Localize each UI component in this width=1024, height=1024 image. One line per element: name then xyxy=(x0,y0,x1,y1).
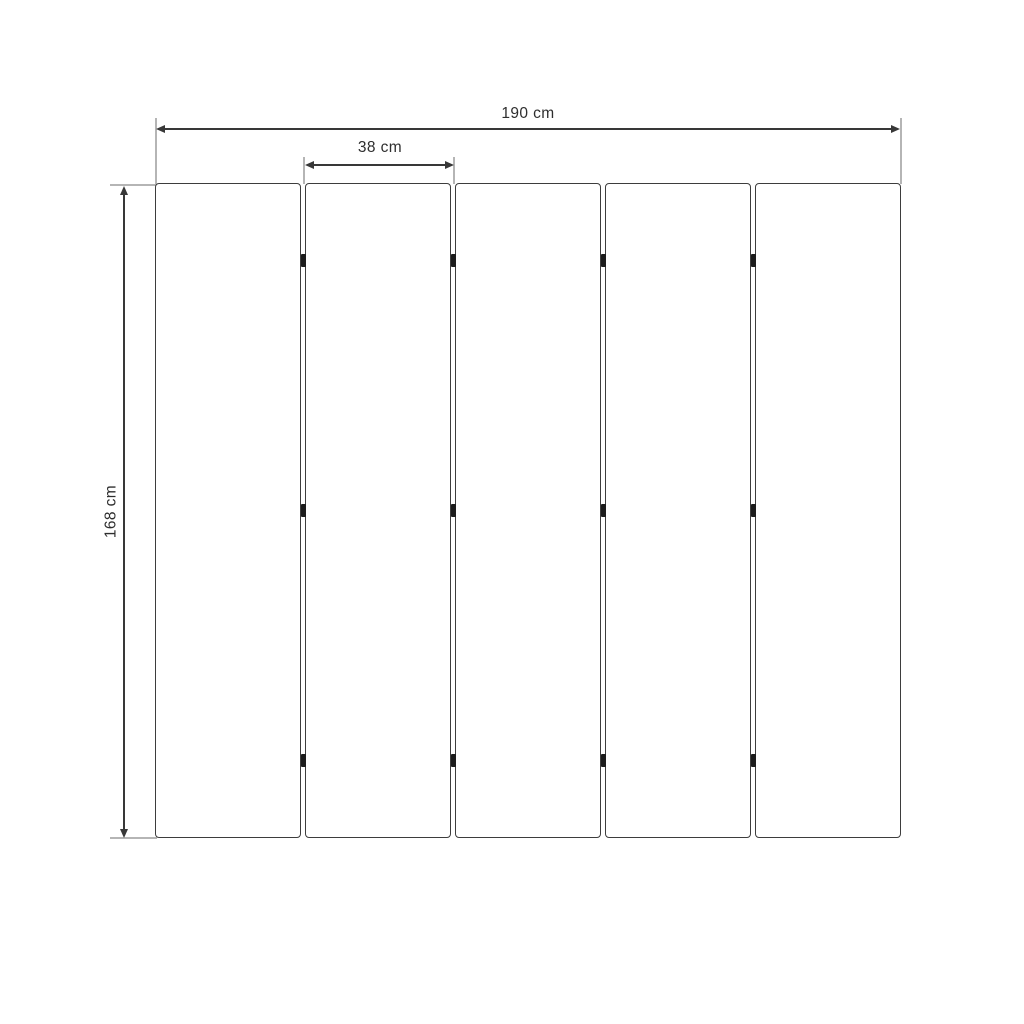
hinge-mark xyxy=(751,754,756,767)
arrow-left-icon xyxy=(156,125,165,133)
arrow-up-icon xyxy=(120,186,128,195)
height-label: 168 cm xyxy=(102,461,121,561)
arrow-right-icon xyxy=(445,161,454,169)
hinge-mark xyxy=(451,504,456,517)
hinge-mark xyxy=(601,254,606,267)
extension-line-height-bottom xyxy=(110,837,157,839)
total-width-label: 190 cm xyxy=(428,104,628,123)
panel-1 xyxy=(155,183,301,838)
panel-5 xyxy=(755,183,901,838)
hinge-mark xyxy=(301,254,306,267)
panel-3 xyxy=(455,183,601,838)
hinge-mark xyxy=(301,504,306,517)
panel-4 xyxy=(605,183,751,838)
panel-2 xyxy=(305,183,451,838)
hinge-mark xyxy=(301,754,306,767)
arrow-down-icon xyxy=(120,829,128,838)
dimension-line-panel-width xyxy=(308,164,450,166)
diagram-canvas: 190 cm 38 cm 168 cm xyxy=(0,0,1024,1024)
extension-line-height-top xyxy=(110,184,157,186)
hinge-mark xyxy=(601,754,606,767)
dimension-line-total-width xyxy=(160,128,896,130)
hinge-mark xyxy=(451,254,456,267)
arrow-right-icon xyxy=(891,125,900,133)
arrow-left-icon xyxy=(305,161,314,169)
hinge-mark xyxy=(451,754,456,767)
extension-line-total-width-right xyxy=(900,118,902,184)
hinge-mark xyxy=(751,254,756,267)
hinge-mark xyxy=(751,504,756,517)
panel-width-label: 38 cm xyxy=(330,138,430,157)
dimension-line-height xyxy=(123,191,125,833)
hinge-mark xyxy=(601,504,606,517)
